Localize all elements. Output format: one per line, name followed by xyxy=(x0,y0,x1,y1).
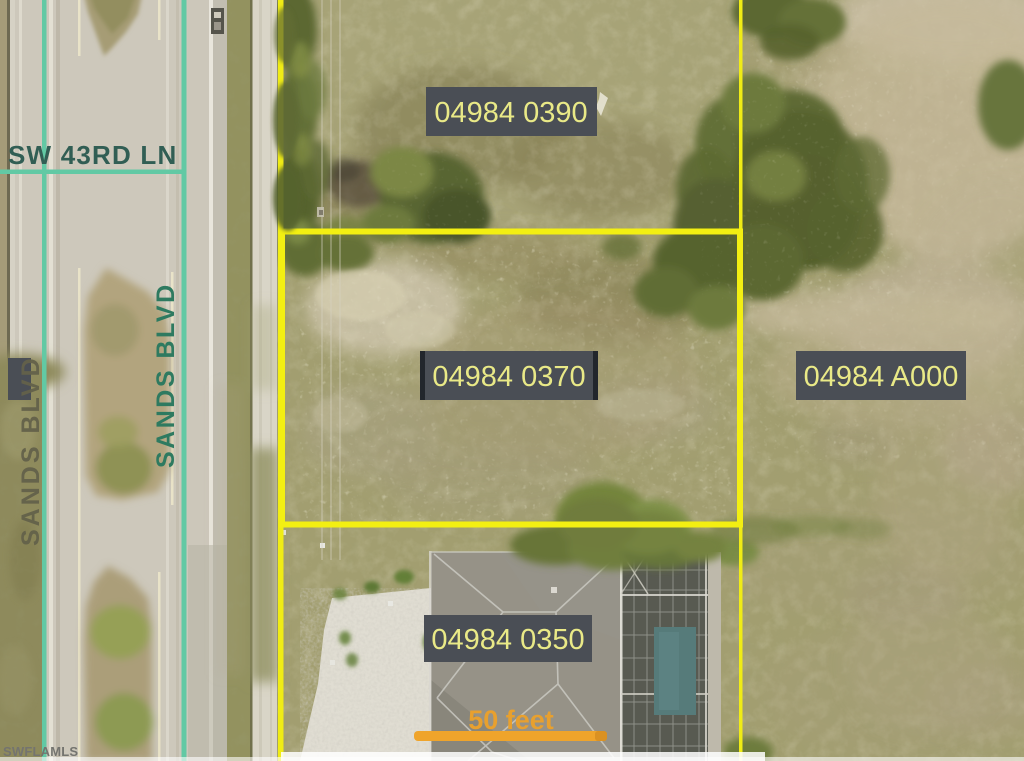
svg-text:SW 43RD LN: SW 43RD LN xyxy=(8,140,177,170)
svg-text:04984 A000: 04984 A000 xyxy=(804,361,959,393)
svg-text:SANDS BLVD: SANDS BLVD xyxy=(152,282,180,468)
svg-text:04984 0390: 04984 0390 xyxy=(434,97,587,129)
svg-text:50 feet: 50 feet xyxy=(468,705,554,735)
svg-text:SWFLAMLS: SWFLAMLS xyxy=(3,744,78,759)
svg-text:04984 0370: 04984 0370 xyxy=(432,361,585,393)
svg-text:04984 0350: 04984 0350 xyxy=(431,624,584,656)
svg-text:SANDS BLVD: SANDS BLVD xyxy=(17,355,45,546)
